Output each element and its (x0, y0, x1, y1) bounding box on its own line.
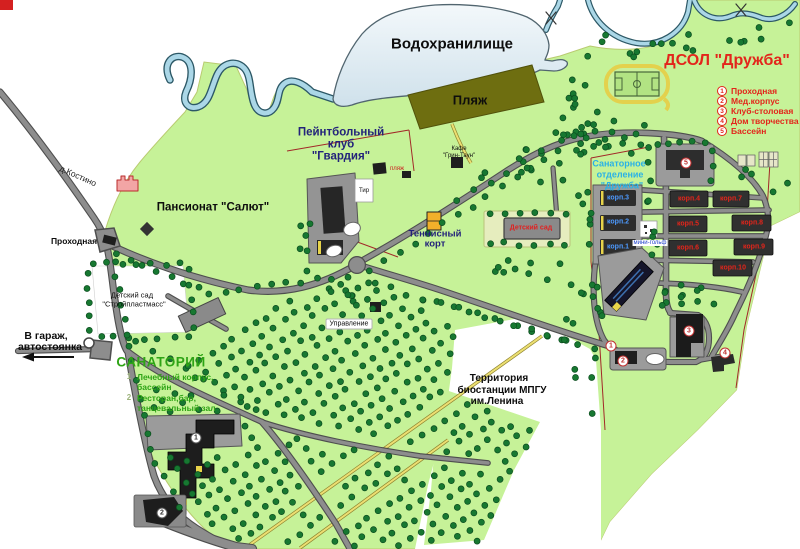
korpus-8-label: корп.8 (741, 220, 763, 227)
dsol-marker-2: 2 (618, 356, 629, 367)
san-marker-1: 1 (191, 433, 202, 444)
korpus-10-label: корп.10 (720, 265, 746, 272)
korpus-1-label: корп.1 (607, 244, 629, 251)
checkpoint-label: Проходная (51, 237, 97, 246)
legend-num-4: 4 (717, 116, 727, 126)
beach-sign-label: пляж (390, 166, 404, 172)
biostation-label-line2: биостанции МПГУ (458, 386, 547, 396)
korpus-6-label: корп.6 (677, 245, 699, 252)
dsol-legend-item-3: 3 Клуб-столовая (717, 106, 793, 116)
korpus-4-label: корп.4 (678, 196, 700, 203)
legend-label-1: Проходная (731, 86, 777, 96)
legend-label-2: Мед.корпус (731, 96, 779, 106)
minigolf-label: мини-гольф (633, 240, 668, 246)
san-legend-1-line2: бассейн (137, 383, 172, 392)
san-legend-2-line1: Ресторан,бар, (137, 394, 196, 403)
korpus-3-label: корп.3 (607, 195, 629, 202)
san-dept-label-line1: Санаторное (592, 160, 645, 169)
resort-map: Водохранилище Пляж ДСОЛ "Дружба" 1 Прохо… (0, 0, 800, 549)
kindergarten2-label-line1: Детский сад (111, 291, 153, 299)
korpus-7-label: корп.7 (720, 196, 742, 203)
biostation-label-line1: Территория (470, 374, 529, 384)
korpus-5-label: корп.5 (677, 221, 699, 228)
pansionat-label: Пансионат "Салют" (157, 202, 269, 214)
dsol-legend-item-2: 2 Мед.корпус (717, 96, 779, 106)
korpus-2-label: корп.2 (607, 219, 629, 226)
legend-label-3: Клуб-столовая (731, 106, 793, 116)
legend-num-2: 2 (717, 96, 727, 106)
dsol-legend-item-1: 1 Проходная (717, 86, 777, 96)
san-legend-num-1: 1 (127, 373, 131, 381)
beach-label: Пляж (453, 94, 487, 107)
dsol-title: ДСОЛ "Дружба" (664, 53, 790, 69)
biostation-label-line3: им.Ленина (471, 397, 524, 407)
map-canvas (0, 0, 800, 549)
dsol-legend-item-5: 5 Бассейн (717, 126, 766, 136)
legend-num-5: 5 (717, 126, 727, 136)
san-marker-2: 2 (157, 508, 168, 519)
dsol-marker-1: 1 (606, 341, 617, 352)
paintball-label-line2: клуб (328, 139, 355, 151)
kindergarten2-label-line2: "Стройпластмасс" (102, 300, 165, 308)
san-legend-2-line2: танцевальный зал (137, 404, 216, 413)
administration-label: Управление (326, 319, 373, 330)
san-dept-label-line3: "Дружба" (601, 182, 643, 191)
cafe-label-line2: "Грин-Таун" (443, 153, 475, 159)
paintball-label-line3: "Гвардия" (312, 151, 370, 163)
sanatoriy-title: САНАТОРИЙ (116, 355, 205, 369)
shooting-range-label: Тир (359, 188, 369, 194)
tennis-label-line2: корт (425, 239, 446, 249)
dsol-marker-5: 5 (681, 158, 692, 169)
san-legend-1-line1: Лечебный корпус, (137, 373, 214, 382)
legend-num-3: 3 (717, 106, 727, 116)
korpus-9-label: корп.9 (743, 244, 765, 251)
dsol-marker-3: 3 (684, 326, 695, 337)
dsol-kindergarten-label: Детский сад (510, 225, 552, 232)
corner-mark (0, 0, 13, 10)
reservoir-label: Водохранилище (391, 37, 513, 52)
garage-label-line2: автостоянка (18, 342, 82, 353)
cafe-label-line1: Кафе (451, 146, 466, 152)
garage-label-line1: В гараж, (24, 331, 67, 342)
san-dept-label-line2: отделение (597, 171, 644, 180)
paintball-label-line1: Пейнтбольный (298, 127, 384, 139)
legend-label-5: Бассейн (731, 126, 766, 136)
legend-label-4: Дом творчества (731, 116, 799, 126)
dsol-marker-4: 4 (720, 348, 731, 359)
san-legend-num-2: 2 (127, 394, 131, 402)
dsol-legend-item-4: 4 Дом творчества (717, 116, 799, 126)
legend-num-1: 1 (717, 86, 727, 96)
